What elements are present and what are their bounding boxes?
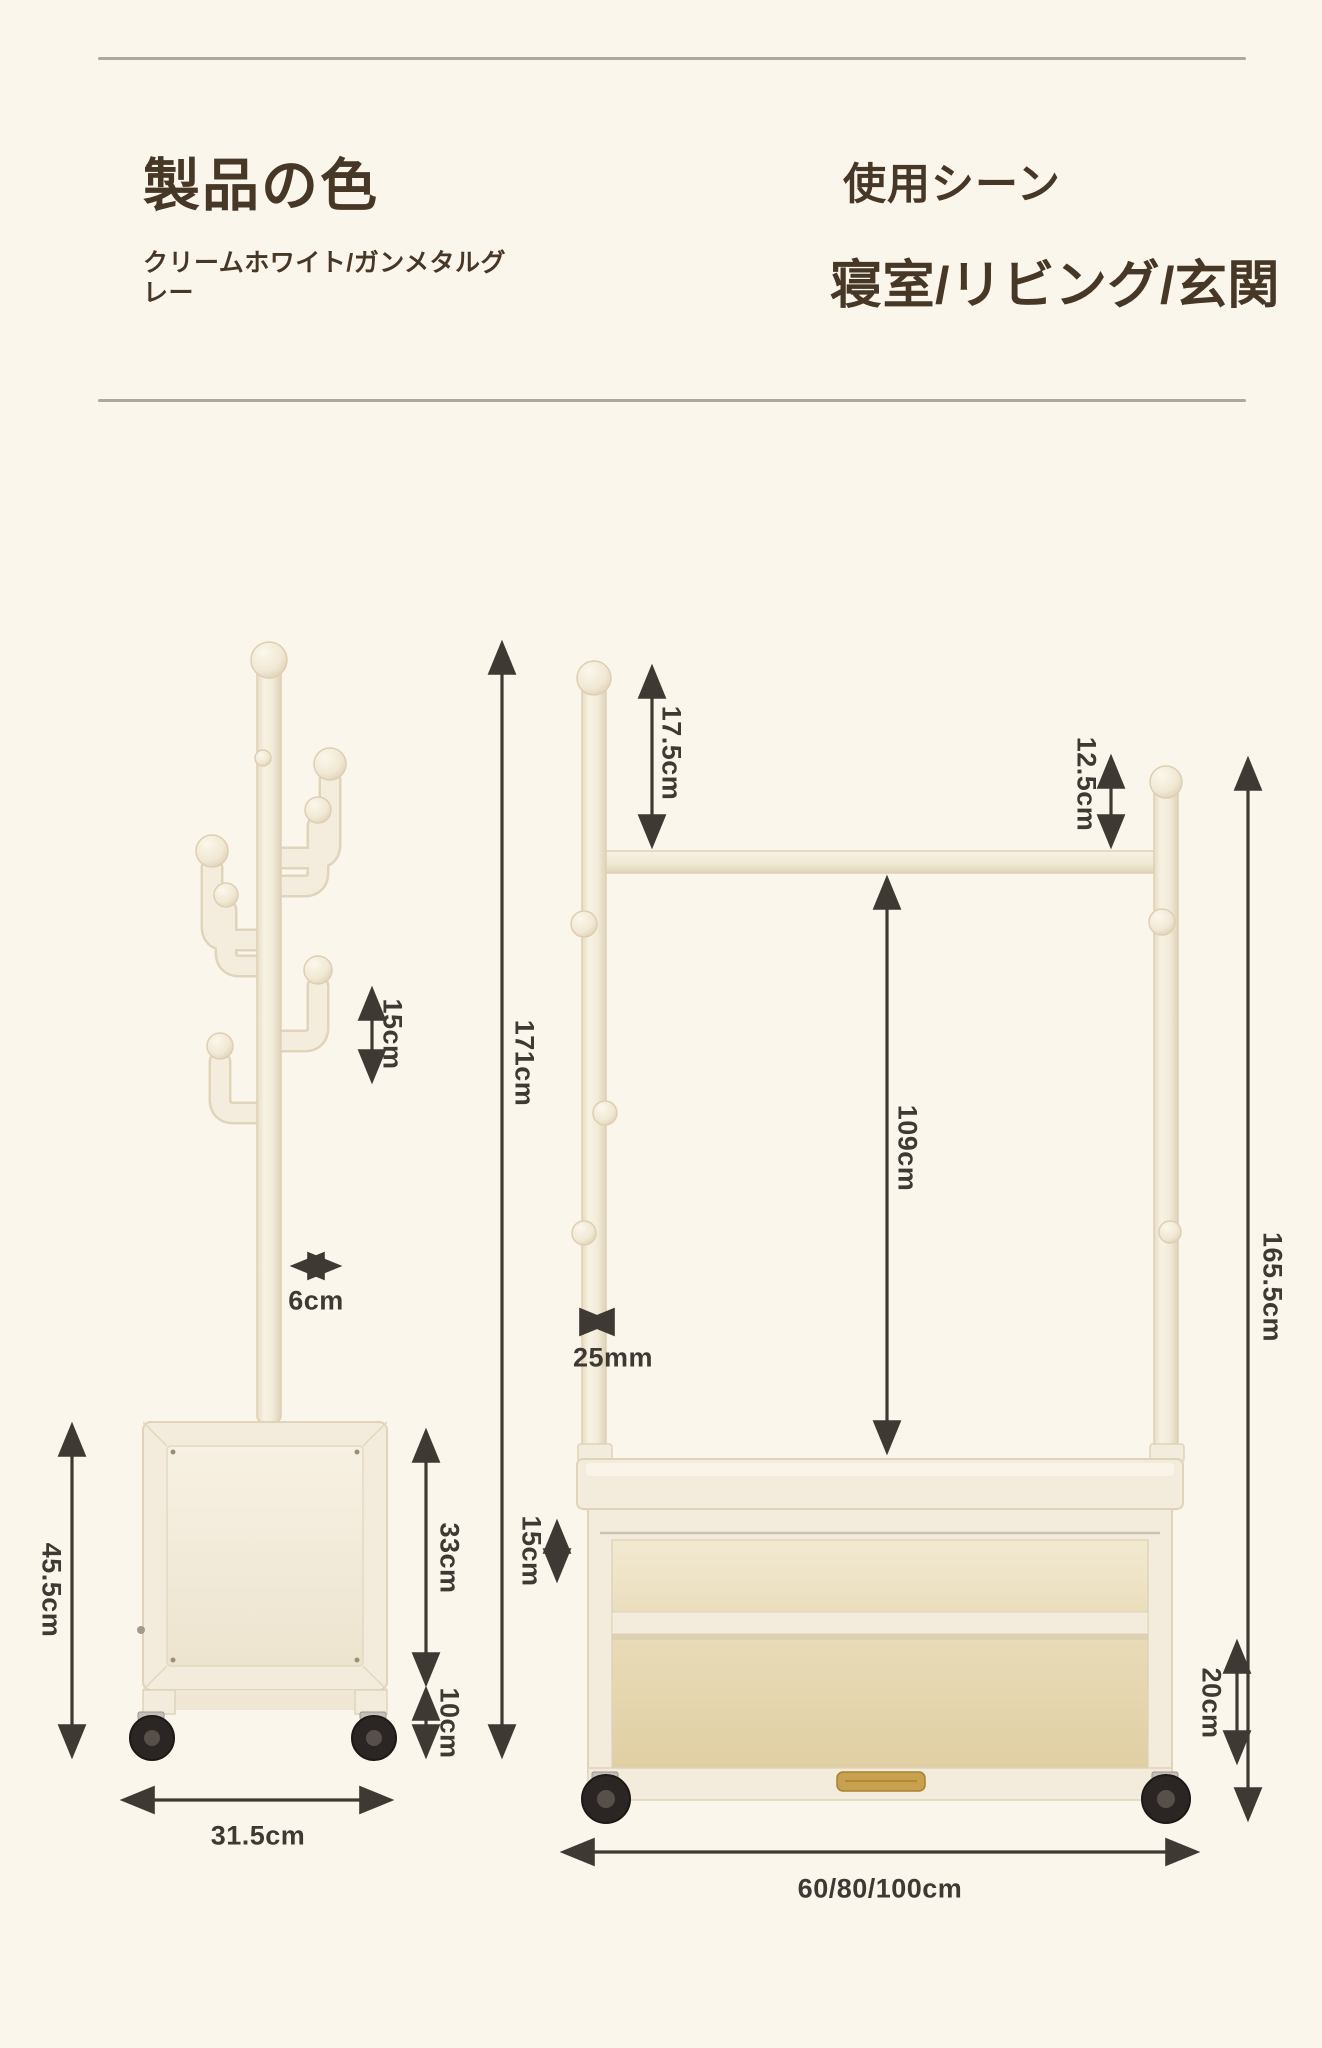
- right-pole-top-ball: [1150, 766, 1182, 798]
- coat-stand-wheels: [130, 1712, 396, 1760]
- dim-label-width-options: 60/80/100cm: [798, 1874, 963, 1905]
- product-spec-infographic: 製品の色 クリームホワイト/ガンメタルグレー 使用シーン 寝室/リビング/玄関: [0, 0, 1322, 2048]
- hanger-rack-illustration: [571, 661, 1190, 1823]
- caster-wheel: [130, 1712, 174, 1760]
- top-ball-knob: [251, 642, 287, 678]
- dim-label-top-gap: 15cm: [516, 1515, 547, 1586]
- latch-knob: [137, 1626, 145, 1634]
- dim-label-rack-total-height: 165.5cm: [1257, 1232, 1288, 1342]
- cabinet-opening: [612, 1540, 1148, 1768]
- dim-label-hook-height: 15cm: [377, 998, 408, 1069]
- dim-label-cabinet-height: 33cm: [434, 1522, 465, 1593]
- dim-label-shelf-height: 20cm: [1196, 1667, 1227, 1738]
- dim-label-pole-above-rail: 17.5cm: [656, 706, 687, 801]
- coat-stand-illustration: [130, 642, 396, 1760]
- dimension-diagram: [0, 0, 1322, 2048]
- left-pole-top-ball: [577, 661, 611, 695]
- rack-left-pole: [582, 672, 606, 1510]
- dim-label-clearance: 10cm: [434, 1687, 465, 1758]
- dim-label-base-height: 45.5cm: [36, 1543, 67, 1638]
- dim-label-stand-total-height: 171cm: [509, 1020, 540, 1107]
- caster-wheel: [352, 1712, 396, 1760]
- hanging-rail: [590, 851, 1172, 873]
- rack-cabinet: [577, 1444, 1184, 1800]
- middle-shelf: [612, 1612, 1148, 1634]
- dim-label-rail-to-shelf: 109cm: [892, 1105, 923, 1192]
- coat-stand-cabinet: [137, 1422, 387, 1714]
- dim-label-knob-above-rail: 12.5cm: [1071, 737, 1102, 832]
- dim-label-base-width: 31.5cm: [211, 1821, 306, 1852]
- dim-label-pole-diameter: 25mm: [573, 1343, 653, 1374]
- rack-right-pole: [1154, 776, 1178, 1510]
- dim-label-hook-depth: 6cm: [288, 1286, 344, 1317]
